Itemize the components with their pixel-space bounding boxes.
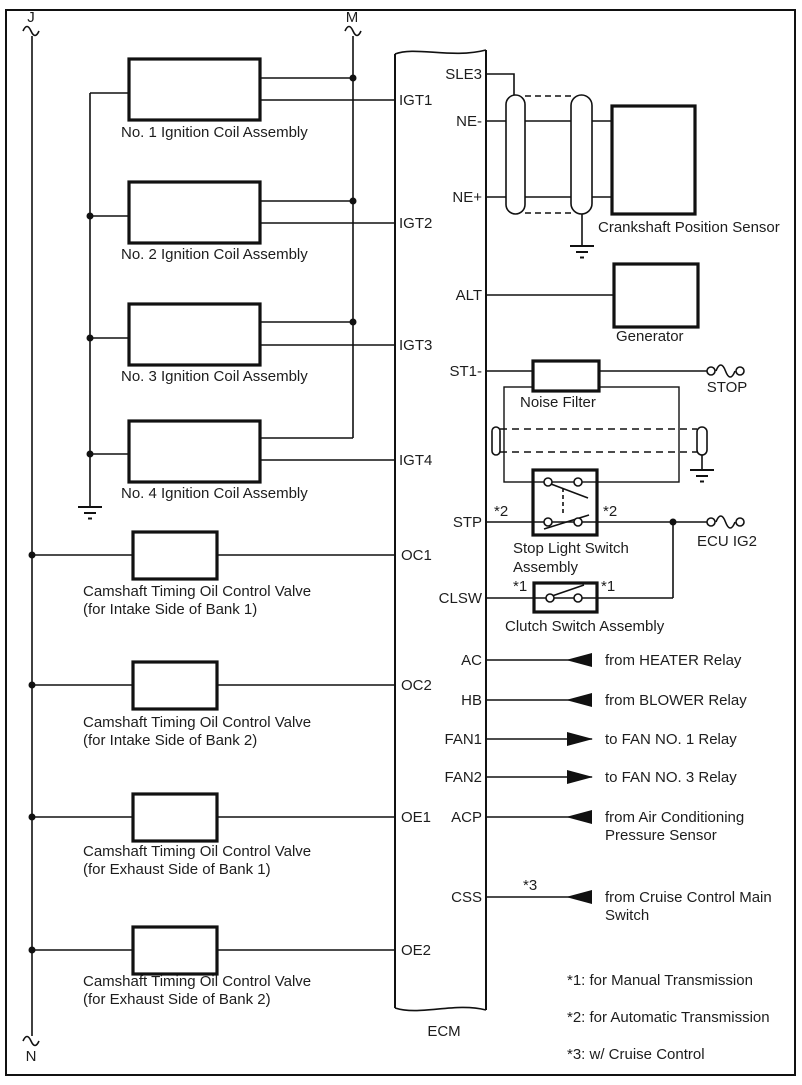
pin-stp: STP xyxy=(453,514,482,531)
ecm-top-wavy-edge xyxy=(395,50,486,54)
valve2-label-line1: Camshaft Timing Oil Control Valve xyxy=(83,714,311,731)
acp-label-line1: from Air Conditioning xyxy=(605,809,744,826)
fan1-relay-label: to FAN NO. 1 Relay xyxy=(605,731,737,748)
break-symbol-m xyxy=(345,27,361,36)
crank-sensor-label: Crankshaft Position Sensor xyxy=(598,219,780,236)
coil2-label: No. 2 Ignition Coil Assembly xyxy=(121,246,308,263)
ecu-ig2-label: ECU IG2 xyxy=(697,533,757,550)
pin-fan2: FAN2 xyxy=(444,769,482,786)
generator-label: Generator xyxy=(616,328,684,345)
valve3-label-line2: (for Exhaust Side of Bank 1) xyxy=(83,861,271,878)
clutch-switch-label: Clutch Switch Assembly xyxy=(505,618,665,635)
stop-connector xyxy=(707,365,744,377)
coil1-label: No. 1 Ignition Coil Assembly xyxy=(121,124,308,141)
arrow-left-blower xyxy=(566,693,592,707)
ground-symbol-shield2 xyxy=(690,470,714,482)
connector-label-m: M xyxy=(346,9,359,26)
pin-oc2: OC2 xyxy=(401,677,432,694)
heater-relay-label: from HEATER Relay xyxy=(605,652,742,669)
ecm-bottom-wavy-edge xyxy=(395,1007,486,1010)
pin-oc1: OC1 xyxy=(401,547,432,564)
pin-oe1: OE1 xyxy=(401,809,431,826)
flag-star3: *3 xyxy=(523,877,537,894)
flag-star2-left: *2 xyxy=(494,503,508,520)
pin-clsw: CLSW xyxy=(439,590,483,607)
coil3-box xyxy=(129,304,260,365)
coil1-box xyxy=(129,59,260,120)
stop-light-switch-label-line1: Stop Light Switch xyxy=(513,540,629,557)
wiring-diagram-page: J N M ECM SLE3 NE- NE+ ALT ST1- STP CLSW… xyxy=(0,0,802,1085)
arrow-left-acp xyxy=(566,810,592,824)
switch-lever-top xyxy=(551,484,588,498)
ecm-label: ECM xyxy=(427,1023,460,1040)
crank-sensor-box xyxy=(612,106,695,214)
external-arrows xyxy=(486,653,593,904)
valve4-label-line2: (for Exhaust Side of Bank 2) xyxy=(83,991,271,1008)
valve4-label-line1: Camshaft Timing Oil Control Valve xyxy=(83,973,311,990)
valve3-box xyxy=(133,794,217,841)
pin-fan1: FAN1 xyxy=(444,731,482,748)
note-star1: *1: for Manual Transmission xyxy=(567,972,753,989)
valve4-box xyxy=(133,927,217,974)
valve1-box xyxy=(133,532,217,579)
pin-igt3: IGT3 xyxy=(399,337,432,354)
valve2-label-line2: (for Intake Side of Bank 2) xyxy=(83,732,257,749)
coil2-box xyxy=(129,182,260,243)
sle3-wire xyxy=(486,74,514,95)
arrow-right-fan2 xyxy=(567,770,593,784)
pin-oe2: OE2 xyxy=(401,942,431,959)
valve1-label-line1: Camshaft Timing Oil Control Valve xyxy=(83,583,311,600)
coil4-box xyxy=(129,421,260,482)
css-label-line1: from Cruise Control Main xyxy=(605,889,772,906)
ground-symbol-coils xyxy=(78,507,102,519)
flag-star1-right: *1 xyxy=(601,578,615,595)
coil3-label: No. 3 Ignition Coil Assembly xyxy=(121,368,308,385)
footnotes: *1: for Manual Transmission *2: for Auto… xyxy=(567,972,770,1063)
blower-relay-label: from BLOWER Relay xyxy=(605,692,747,709)
bus-m xyxy=(345,27,361,439)
arrow-left-css xyxy=(566,890,592,904)
shield2-capsule-left xyxy=(492,427,500,455)
connector-label-j: J xyxy=(27,9,35,26)
pin-igt4: IGT4 xyxy=(399,452,432,469)
ecu-ig2-connector xyxy=(707,516,744,528)
noise-filter-label: Noise Filter xyxy=(520,394,596,411)
break-symbol-n xyxy=(23,1037,39,1046)
pin-sle3: SLE3 xyxy=(445,66,482,83)
fan2-relay-label: to FAN NO. 3 Relay xyxy=(605,769,737,786)
break-symbol-j xyxy=(23,27,39,36)
ecm-left-pin-labels: IGT1 IGT2 IGT3 IGT4 OC1 OC2 OE1 OE2 xyxy=(399,92,432,959)
shield-capsule-right xyxy=(571,95,592,214)
flag-star1-left: *1 xyxy=(513,578,527,595)
shield2-capsule-right xyxy=(697,427,707,455)
arrow-right-fan1 xyxy=(567,732,593,746)
pin-ne-plus: NE+ xyxy=(452,189,482,206)
pin-css: CSS xyxy=(451,889,482,906)
pin-ac: AC xyxy=(461,652,482,669)
pin-alt: ALT xyxy=(456,287,482,304)
generator-box xyxy=(614,264,698,327)
note-star2: *2: for Automatic Transmission xyxy=(567,1009,770,1026)
stop-light-switch-label-line2: Assembly xyxy=(513,559,579,576)
pin-igt2: IGT2 xyxy=(399,215,432,232)
ground-symbol-crank xyxy=(570,246,594,258)
generator-circuit xyxy=(486,264,698,327)
coil4-label: No. 4 Ignition Coil Assembly xyxy=(121,485,308,502)
bus-j xyxy=(23,27,39,1046)
ecm-right-pin-labels: SLE3 NE- NE+ ALT ST1- STP CLSW AC HB FAN… xyxy=(439,66,483,906)
stop-connector-label: STOP xyxy=(707,379,748,396)
css-label-line2: Switch xyxy=(605,907,649,924)
pin-ne-minus: NE- xyxy=(456,113,482,130)
valve2-box xyxy=(133,662,217,709)
stop-light-switch-box xyxy=(533,470,597,535)
ecm-wiring-diagram: J N M ECM SLE3 NE- NE+ ALT ST1- STP CLSW… xyxy=(0,0,802,1085)
shield-capsule-left xyxy=(506,95,525,214)
note-star3: *3: w/ Cruise Control xyxy=(567,1046,705,1063)
acp-label-line2: Pressure Sensor xyxy=(605,827,717,844)
noise-filter-box xyxy=(533,361,599,391)
pin-st1-minus: ST1- xyxy=(449,363,482,380)
connector-label-n: N xyxy=(26,1048,37,1065)
pin-igt1: IGT1 xyxy=(399,92,432,109)
pin-acp: ACP xyxy=(451,809,482,826)
valve3-label-line1: Camshaft Timing Oil Control Valve xyxy=(83,843,311,860)
arrow-left-heater xyxy=(566,653,592,667)
flag-star2-right: *2 xyxy=(603,503,617,520)
pin-hb: HB xyxy=(461,692,482,709)
valve1-label-line2: (for Intake Side of Bank 1) xyxy=(83,601,257,618)
